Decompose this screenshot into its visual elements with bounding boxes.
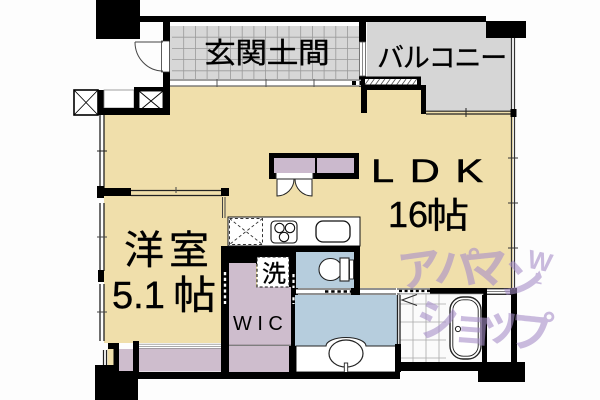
svg-text:LDK: LDK	[371, 153, 499, 189]
svg-text:16: 16	[388, 194, 428, 235]
svg-text:5.1: 5.1	[112, 275, 165, 317]
svg-text:WIC: WIC	[233, 313, 288, 335]
